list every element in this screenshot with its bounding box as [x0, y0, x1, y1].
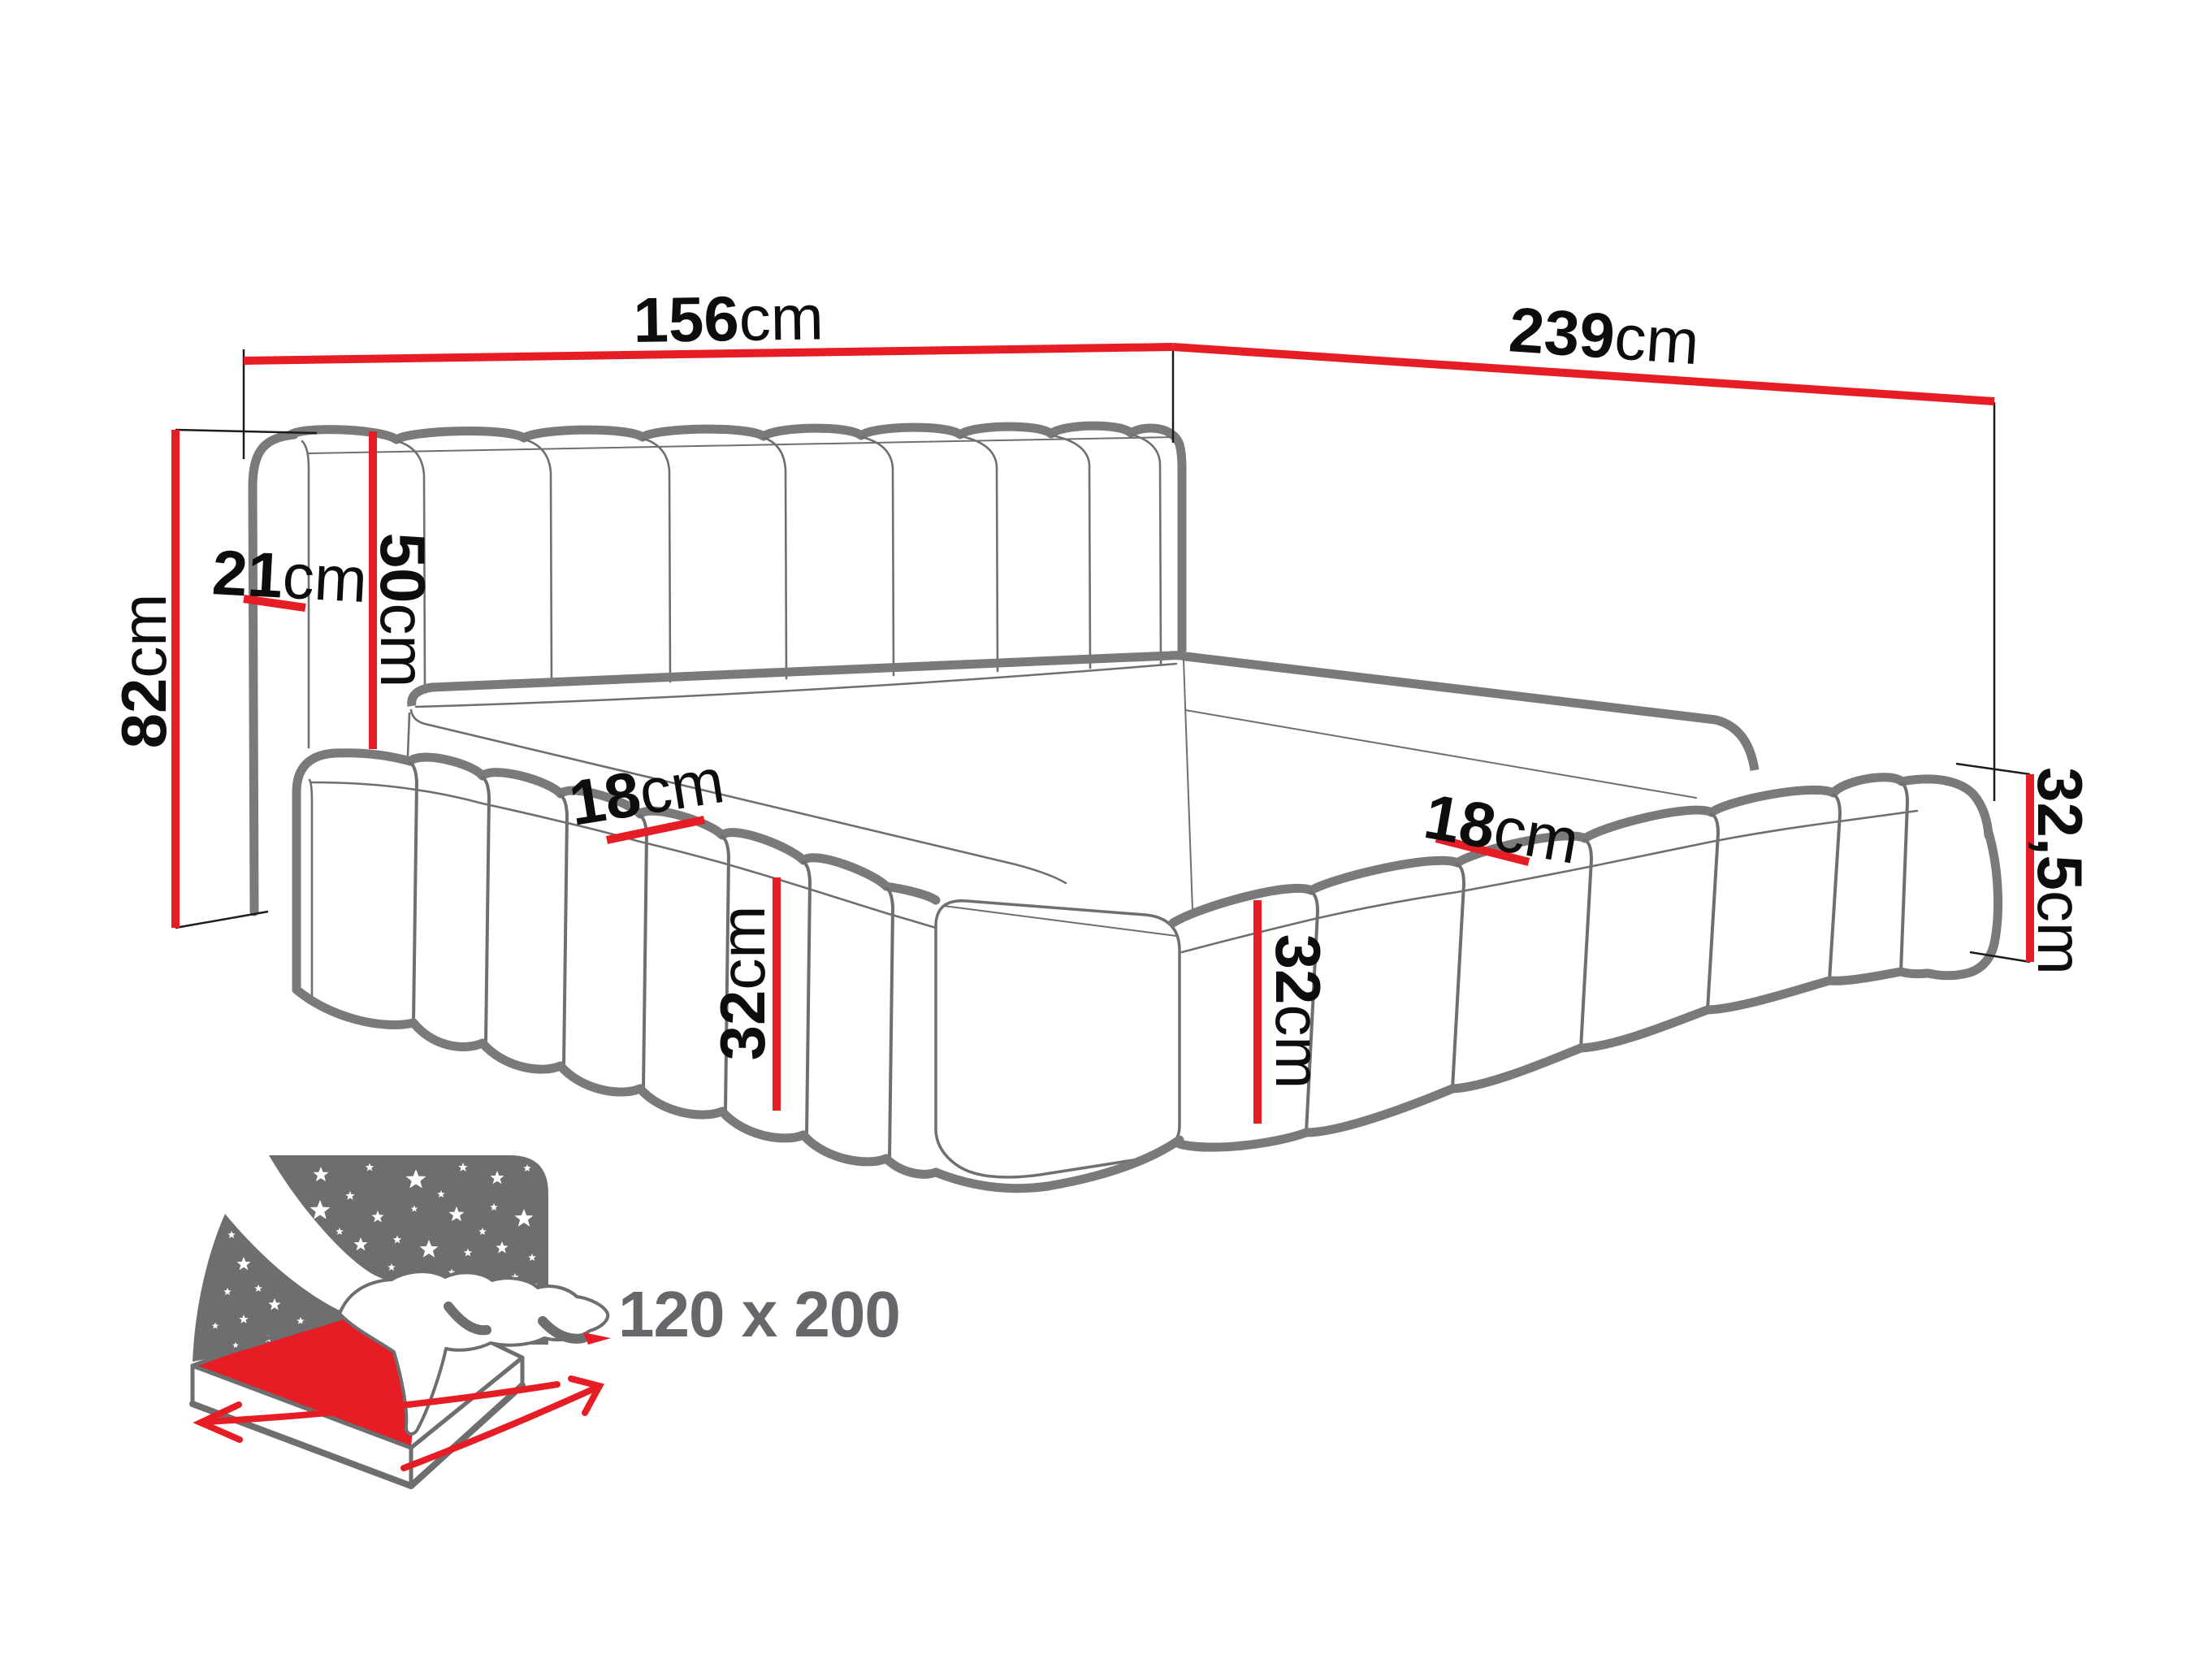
- svg-text:32cm: 32cm: [707, 906, 778, 1061]
- svg-text:50cm: 50cm: [367, 533, 439, 688]
- svg-text:21cm: 21cm: [210, 536, 369, 616]
- svg-text:32cm: 32cm: [1262, 934, 1334, 1089]
- svg-text:32,5cm: 32,5cm: [2024, 767, 2096, 975]
- svg-text:239cm: 239cm: [1507, 293, 1702, 378]
- svg-text:82cm: 82cm: [108, 594, 180, 749]
- svg-text:120 x 200: 120 x 200: [618, 1278, 900, 1350]
- svg-text:156cm: 156cm: [633, 281, 824, 356]
